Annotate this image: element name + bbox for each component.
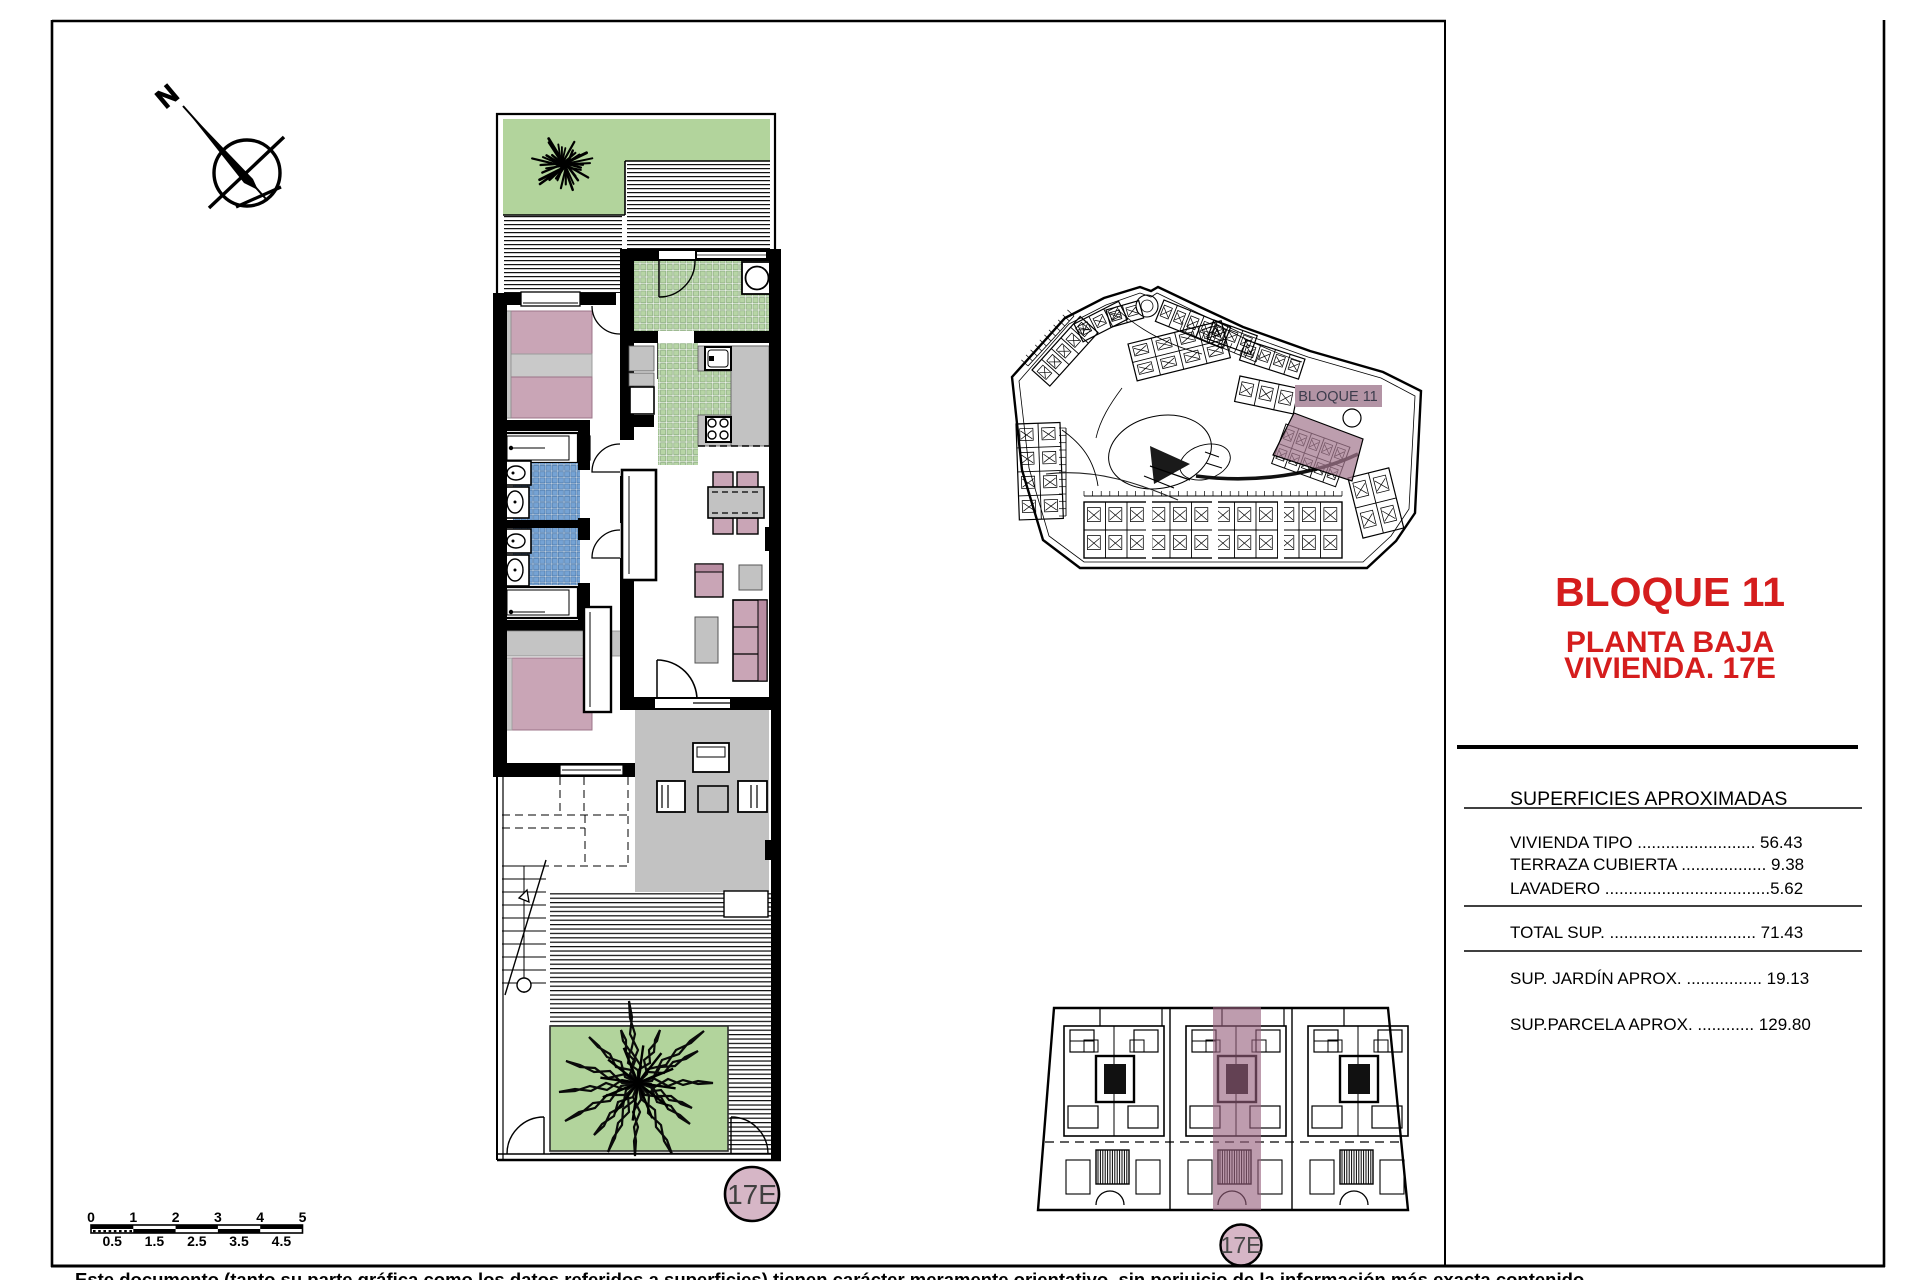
svg-text:1: 1 <box>129 1209 137 1225</box>
svg-text:BLOQUE 11: BLOQUE 11 <box>1555 569 1785 615</box>
svg-text:TOTAL SUP. ..................: TOTAL SUP. .............................… <box>1510 923 1803 942</box>
svg-text:3.5: 3.5 <box>229 1233 249 1249</box>
svg-text:4: 4 <box>256 1209 264 1225</box>
svg-text:2: 2 <box>172 1209 180 1225</box>
svg-text:2.5: 2.5 <box>187 1233 207 1249</box>
svg-text:3: 3 <box>214 1209 222 1225</box>
svg-text:17E: 17E <box>1221 1232 1262 1258</box>
svg-text:5: 5 <box>299 1209 307 1225</box>
svg-text:SUP. JARDÍN APROX. ...........: SUP. JARDÍN APROX. ................ 19.1… <box>1510 969 1809 988</box>
svg-text:LAVADERO .....................: LAVADERO ...............................… <box>1510 879 1803 898</box>
svg-text:SUPERFICIES APROXIMADAS: SUPERFICIES APROXIMADAS <box>1510 788 1787 810</box>
svg-text:0.5: 0.5 <box>102 1233 122 1249</box>
svg-text:TERRAZA CUBIERTA .............: TERRAZA CUBIERTA .................. 9.38 <box>1510 855 1804 874</box>
svg-text:VIVIENDA. 17E: VIVIENDA. 17E <box>1564 652 1776 685</box>
svg-text:1.5: 1.5 <box>145 1233 165 1249</box>
svg-text:0: 0 <box>87 1209 95 1225</box>
svg-text:SUP.PARCELA APROX. ...........: SUP.PARCELA APROX. ............ 129.80 <box>1510 1015 1811 1034</box>
svg-text:4.5: 4.5 <box>272 1233 292 1249</box>
svg-text:VIVIENDA TIPO ................: VIVIENDA TIPO ......................... … <box>1510 833 1803 852</box>
svg-text:Este documento (tanto su parte: Este documento (tanto su parte gráfica c… <box>75 1269 1584 1280</box>
svg-text:BLOQUE 11: BLOQUE 11 <box>1298 389 1378 405</box>
svg-text:17E: 17E <box>727 1179 777 1210</box>
